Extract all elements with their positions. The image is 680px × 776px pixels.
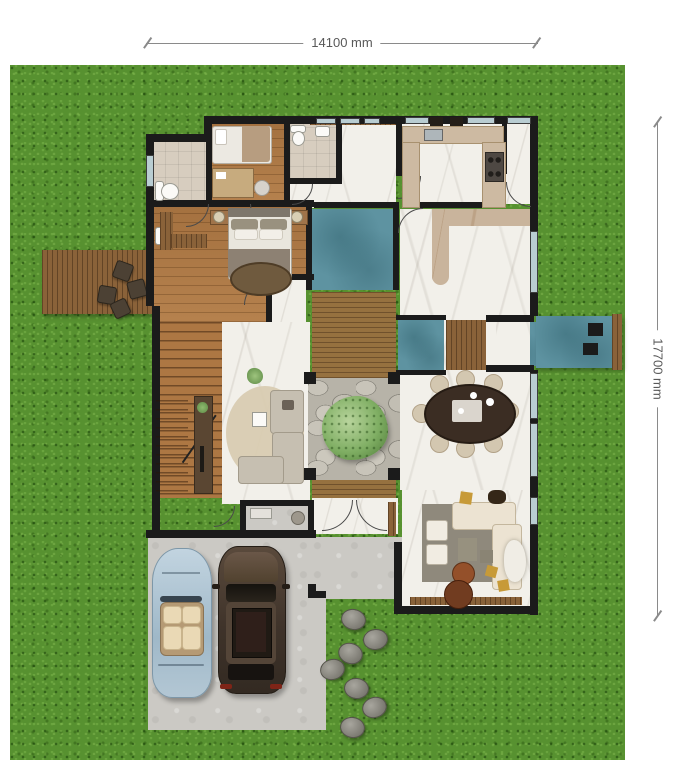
convertible-hood-line: [162, 572, 200, 574]
wall-water-right: [393, 202, 399, 290]
wc-stool: [291, 511, 305, 525]
living-plant: [247, 368, 263, 384]
water-feature-walkway-outer: [536, 316, 622, 368]
bathroom-sink: [315, 126, 330, 137]
table-plate: [458, 408, 464, 414]
wall-water-top: [314, 202, 394, 208]
wall-passage-bottom: [486, 365, 534, 372]
bed-blanket: [242, 126, 270, 162]
stove: [485, 152, 504, 182]
vestibule-side-threshold: [388, 502, 396, 536]
coffee-table-block: [480, 550, 493, 563]
wall-family-left: [394, 542, 402, 614]
suv-interior: [236, 612, 266, 652]
console-soundbar: [200, 446, 204, 472]
sofa-cushion: [282, 400, 294, 410]
built-in-appliance: [450, 117, 463, 126]
window: [147, 156, 153, 186]
walkway-black-square: [583, 343, 598, 355]
console-plant: [197, 402, 208, 413]
water-square-small: [398, 320, 444, 370]
family-plant: [488, 490, 506, 504]
dimension-tick: [653, 610, 662, 622]
window-bench-horizontal: [171, 234, 207, 248]
coffee-table-block: [458, 538, 477, 561]
window: [531, 498, 537, 524]
toilet-bowl: [161, 183, 179, 200]
convertible-trunk-line: [158, 664, 204, 666]
wicker-bench: [230, 262, 292, 296]
armchair: [426, 544, 448, 565]
walkway-black-square: [588, 323, 603, 336]
window: [317, 119, 335, 123]
courtyard-post: [388, 372, 400, 384]
suv-rear-window: [228, 664, 274, 680]
courtyard-post: [304, 372, 316, 384]
window: [531, 424, 537, 476]
walkway-lower: [312, 480, 396, 500]
window: [468, 118, 494, 123]
table-plate: [470, 392, 477, 399]
bedside-lamp: [213, 211, 225, 223]
coffee-table: [252, 412, 267, 427]
walkway-mini-deck: [446, 320, 486, 370]
width-dimension-label: 14100 mm: [303, 35, 380, 50]
toilet-bowl: [292, 131, 305, 146]
walkway-upper: [312, 292, 396, 378]
window: [508, 118, 530, 123]
patio: [310, 537, 402, 599]
window: [406, 118, 428, 123]
car-seat: [163, 626, 182, 650]
wall-top-bath: [146, 134, 208, 142]
suv-taillight: [270, 684, 282, 689]
walkway-end-wood-cap: [612, 314, 622, 370]
car-seat: [163, 606, 182, 624]
suv-mirror: [282, 584, 290, 589]
wall-passage-top: [486, 315, 534, 322]
window: [365, 119, 379, 123]
desk-paper: [216, 172, 226, 179]
round-side-table: [444, 580, 473, 609]
suv-hood: [224, 552, 278, 582]
wall-water2-top: [396, 315, 446, 320]
floor-cushion: [459, 491, 473, 505]
shag-rug: [504, 540, 526, 582]
kitchen-counter-left: [402, 142, 420, 208]
window: [341, 119, 359, 123]
height-dimension-label: 17700 mm: [651, 330, 666, 407]
courtyard-post: [304, 468, 316, 480]
built-in-appliance: [430, 117, 443, 126]
window: [531, 232, 537, 292]
suv-mirror: [212, 584, 220, 589]
bedside-lamp: [291, 211, 303, 223]
wc-counter: [250, 508, 272, 519]
wall-bottom-family: [394, 606, 538, 614]
stair-lower-flight: [156, 400, 188, 496]
bed-pillow: [234, 229, 258, 240]
dimension-right: 17700 mm: [648, 123, 668, 615]
desk-chair: [254, 180, 270, 196]
curved-partition-vertical: [432, 209, 449, 285]
wall-bath2-right: [336, 116, 342, 184]
kitchen-sink: [424, 129, 443, 141]
bed-pillow: [215, 129, 227, 145]
patio-corner-post-h: [308, 591, 326, 598]
floor-cushion: [497, 579, 510, 592]
water-square-large: [312, 209, 393, 290]
car-seat: [182, 626, 201, 650]
courtyard-tree: [322, 396, 388, 460]
courtyard-post: [388, 468, 400, 480]
wall-toprow-bottom: [146, 200, 314, 207]
bed-headboard: [228, 208, 290, 217]
car-seat: [182, 606, 201, 624]
wall-bottom-left: [146, 530, 316, 538]
suv-taillight: [220, 684, 232, 689]
table-plate: [486, 398, 494, 406]
floor-plan-canvas: 14100 mm 17700 mm: [0, 0, 680, 776]
bed-pillow: [259, 229, 283, 240]
sofa-chaise: [270, 390, 304, 434]
sofa-section: [238, 456, 284, 484]
wall-wc-top: [240, 500, 314, 506]
suv-windshield: [226, 584, 276, 602]
dimension-top: 14100 mm: [146, 34, 538, 54]
window: [531, 374, 537, 418]
table-runner: [452, 400, 482, 422]
armchair: [426, 520, 448, 541]
